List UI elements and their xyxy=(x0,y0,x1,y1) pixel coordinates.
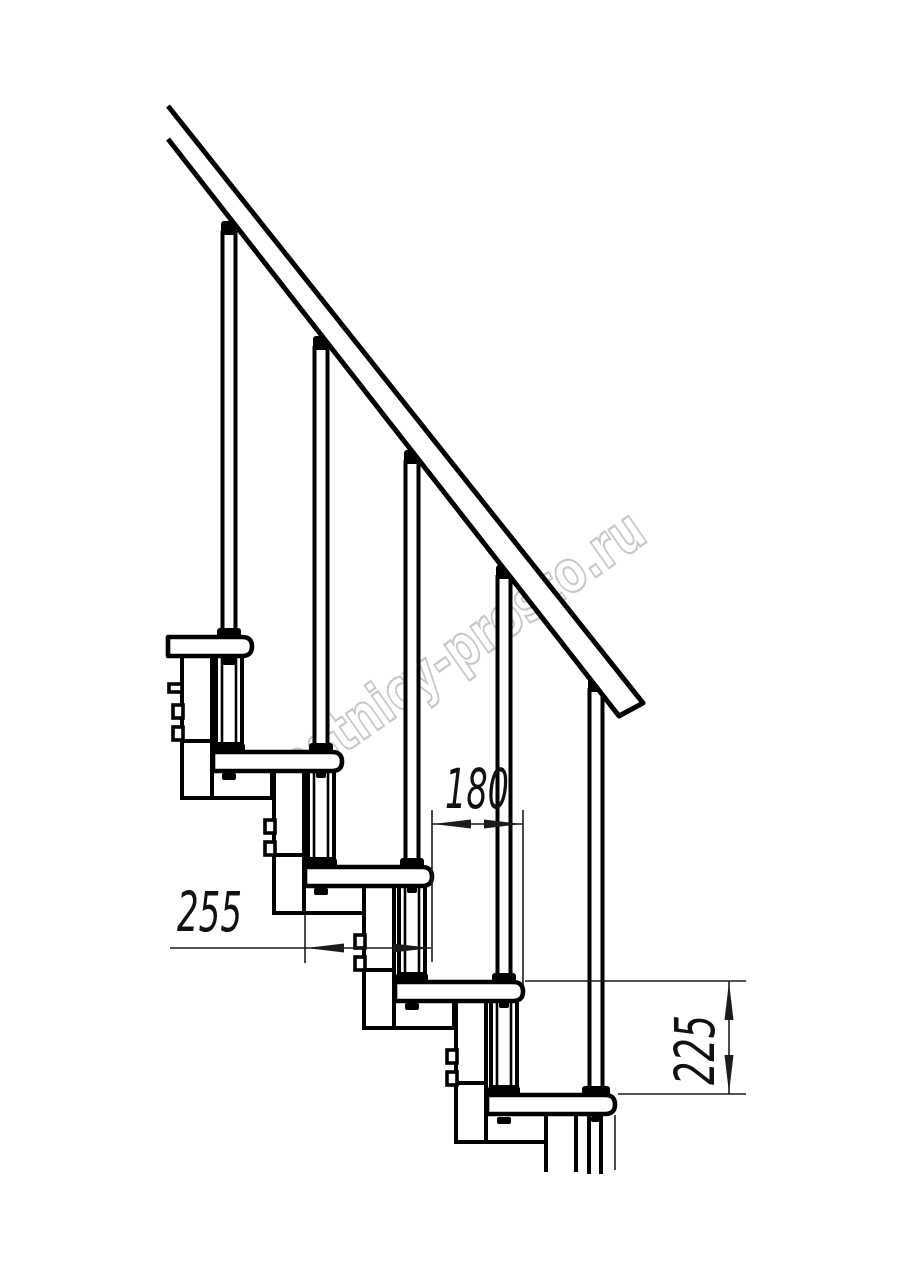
module-3-bolt-icon xyxy=(355,957,365,970)
drawing-page: lestnicy-prosto.ru xyxy=(0,0,914,1280)
sleeve-3 xyxy=(396,886,428,983)
wall-attachment-stub xyxy=(169,684,182,692)
module-3-bolt-icon xyxy=(355,935,365,948)
baluster-2-foot-flange xyxy=(309,743,333,753)
nut-icon xyxy=(407,887,417,893)
module-1-bolt-icon xyxy=(173,727,183,740)
tread-4 xyxy=(395,982,523,1001)
nut-icon xyxy=(222,773,236,780)
tread-2 xyxy=(213,752,342,771)
baluster-3 xyxy=(400,450,424,868)
dimension-label-180: 180 xyxy=(445,757,509,821)
module-1-column xyxy=(182,656,212,798)
tread-1 xyxy=(168,637,252,656)
baluster-5-foot-flange xyxy=(582,1086,610,1096)
module-1-bolt-icon xyxy=(173,705,183,718)
baluster-1 xyxy=(217,221,241,638)
module-2-bolt-icon xyxy=(265,842,275,855)
nut-icon xyxy=(497,1117,511,1124)
baluster-4-foot-flange xyxy=(492,973,516,983)
baluster-2 xyxy=(309,336,333,753)
dimension-label-225: 225 xyxy=(663,1015,727,1085)
module-4-bolt-icon xyxy=(447,1072,457,1085)
staircase-drawing: lestnicy-prosto.ru xyxy=(0,0,914,1280)
module-2-column xyxy=(274,771,304,913)
nut-icon xyxy=(591,1116,601,1122)
sleeve-2 xyxy=(305,771,337,868)
baluster-3-foot-flange xyxy=(400,858,424,868)
nut-icon xyxy=(222,658,236,665)
tread-5 xyxy=(487,1095,615,1114)
module-4-column xyxy=(456,1001,486,1142)
baluster-1-foot-flange xyxy=(217,628,241,638)
nut-icon xyxy=(499,1002,509,1008)
module-4-bolt-icon xyxy=(447,1050,457,1063)
nut-icon xyxy=(314,888,328,895)
dimension-label-255: 255 xyxy=(177,880,242,944)
sleeve-1 xyxy=(213,656,245,753)
sleeve-4 xyxy=(488,1001,520,1096)
module-2-bolt-icon xyxy=(265,820,275,833)
tread-3 xyxy=(305,867,432,886)
nut-icon xyxy=(405,1003,419,1010)
module-3-column xyxy=(364,886,394,1028)
nut-icon xyxy=(316,772,326,778)
